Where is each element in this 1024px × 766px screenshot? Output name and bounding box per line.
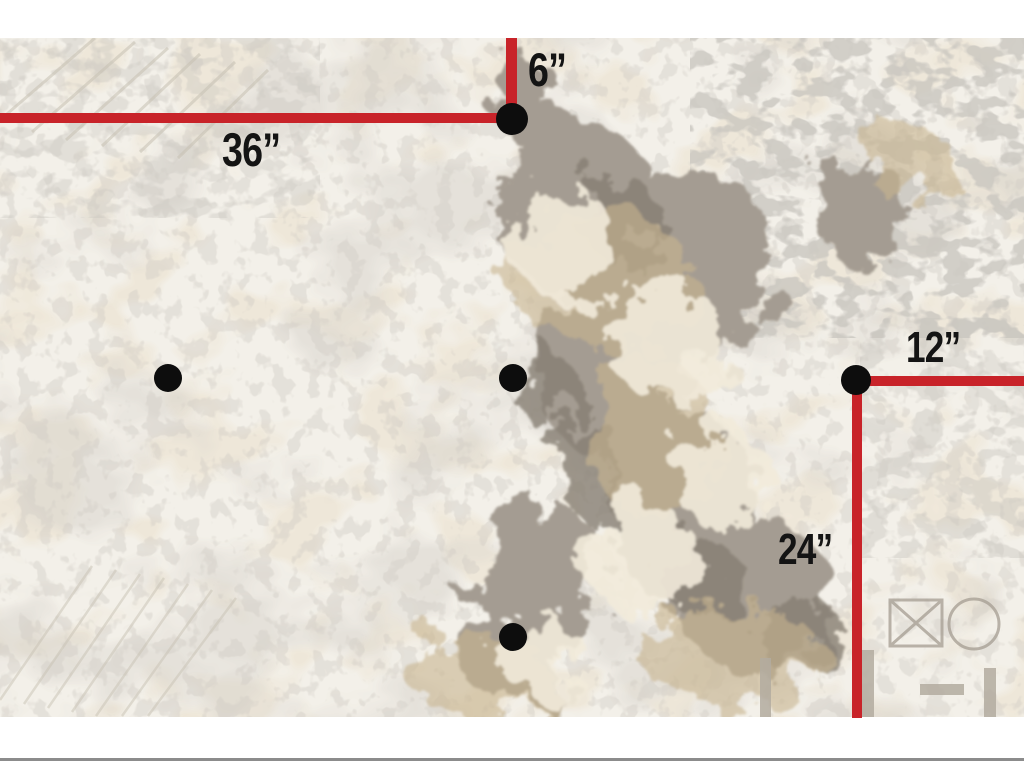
measurement-label-36: 36” [222,126,280,173]
bottom-rule [0,758,1024,761]
measurement-label-6: 6” [528,46,566,93]
measurement-label-12: 12” [906,326,960,370]
measurement-label-24: 24” [778,528,832,572]
figure-page: 36”6”12”24” [0,0,1024,766]
measurement-labels-layer: 36”6”12”24” [0,0,1024,766]
